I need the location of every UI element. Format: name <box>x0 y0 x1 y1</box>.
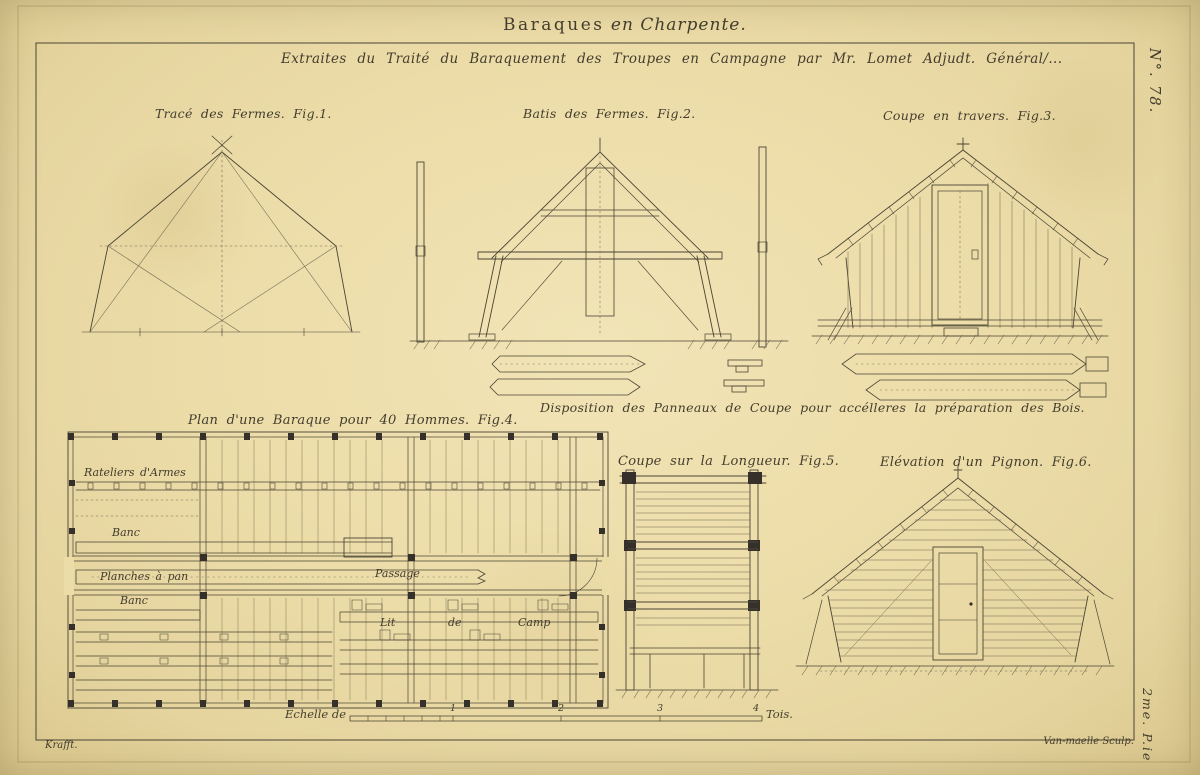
fig6-gable-elevation <box>796 466 1114 675</box>
scale-label: Echelle de <box>285 707 346 721</box>
plate-number: N°. 78. <box>1146 48 1162 114</box>
fig1-caption: Tracé des Fermes. Fig.1. <box>155 106 332 121</box>
panels-caption: Disposition des Panneaux de Coupe pour a… <box>540 400 1085 415</box>
plan-label-bench-bottom: Banc <box>120 594 148 607</box>
fig2-truss-frame <box>410 138 788 349</box>
plate-title-main: Baraques <box>503 15 605 35</box>
scale-tick-2: 2 <box>558 703 564 714</box>
panel-planks <box>490 354 1108 400</box>
fig3-cross-section <box>812 138 1108 344</box>
fig5-caption: Coupe sur la Longueur. Fig.5. <box>618 454 839 469</box>
fig3-caption: Coupe en travers. Fig.3. <box>883 108 1056 123</box>
fig2-caption: Batis des Fermes. Fig.2. <box>523 106 696 121</box>
plan-label-bench-top: Banc <box>112 526 140 539</box>
fig6-caption: Elévation d'un Pignon. Fig.6. <box>880 455 1092 470</box>
scale-tick-4: 4 <box>753 703 759 714</box>
scale-unit: Tois. <box>766 707 793 721</box>
plan-label-racks: Rateliers d'Armes <box>84 466 186 479</box>
plan-label-planks: Planches à pan <box>100 570 188 583</box>
fig5-long-section <box>616 470 778 698</box>
plate-subtitle: Extraites du Traité du Baraquement des T… <box>281 51 1062 67</box>
fig4-caption: Plan d'une Baraque pour 40 Hommes. Fig.4… <box>188 413 518 428</box>
signature-draughtsman: Krafft. <box>45 740 78 751</box>
signature-engraver: Van-maelle Sculp. <box>1022 736 1134 747</box>
engraving-plate: Baraques en Charpente. Extraites du Trai… <box>0 0 1200 775</box>
scale-tick-3: 3 <box>657 703 663 714</box>
plate-part: 2me. P.ie <box>1140 688 1155 762</box>
plan-label-camp: Camp <box>518 616 550 629</box>
scale-tick-1: 1 <box>450 703 456 714</box>
fig1-truss-tracing <box>82 136 360 336</box>
plate-title-rest: en Charpente. <box>605 15 747 35</box>
plate-title: Baraques en Charpente. <box>503 15 747 35</box>
scale-bar <box>350 716 762 721</box>
plan-label-passage: Passage <box>375 567 420 580</box>
plan-label-lit: Lit <box>380 616 395 629</box>
plan-label-de: de <box>448 616 462 629</box>
